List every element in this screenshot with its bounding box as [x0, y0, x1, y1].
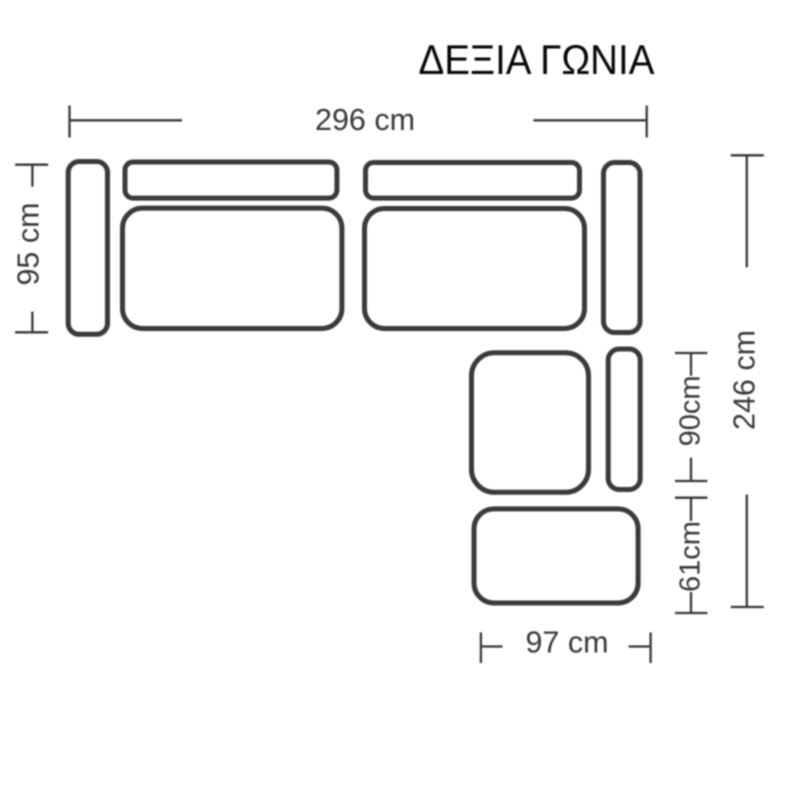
svg-text:246 cm: 246 cm [728, 330, 762, 430]
svg-text:296 cm: 296 cm [315, 103, 415, 137]
svg-text:97 cm: 97 cm [525, 626, 608, 660]
svg-text:ΔΕΞΙΑ ΓΩΝΙΑ: ΔΕΞΙΑ ΓΩΝΙΑ [419, 36, 655, 83]
svg-text:61cm: 61cm [675, 521, 707, 592]
svg-text:95 cm: 95 cm [12, 202, 46, 285]
svg-text:90cm: 90cm [675, 375, 707, 446]
